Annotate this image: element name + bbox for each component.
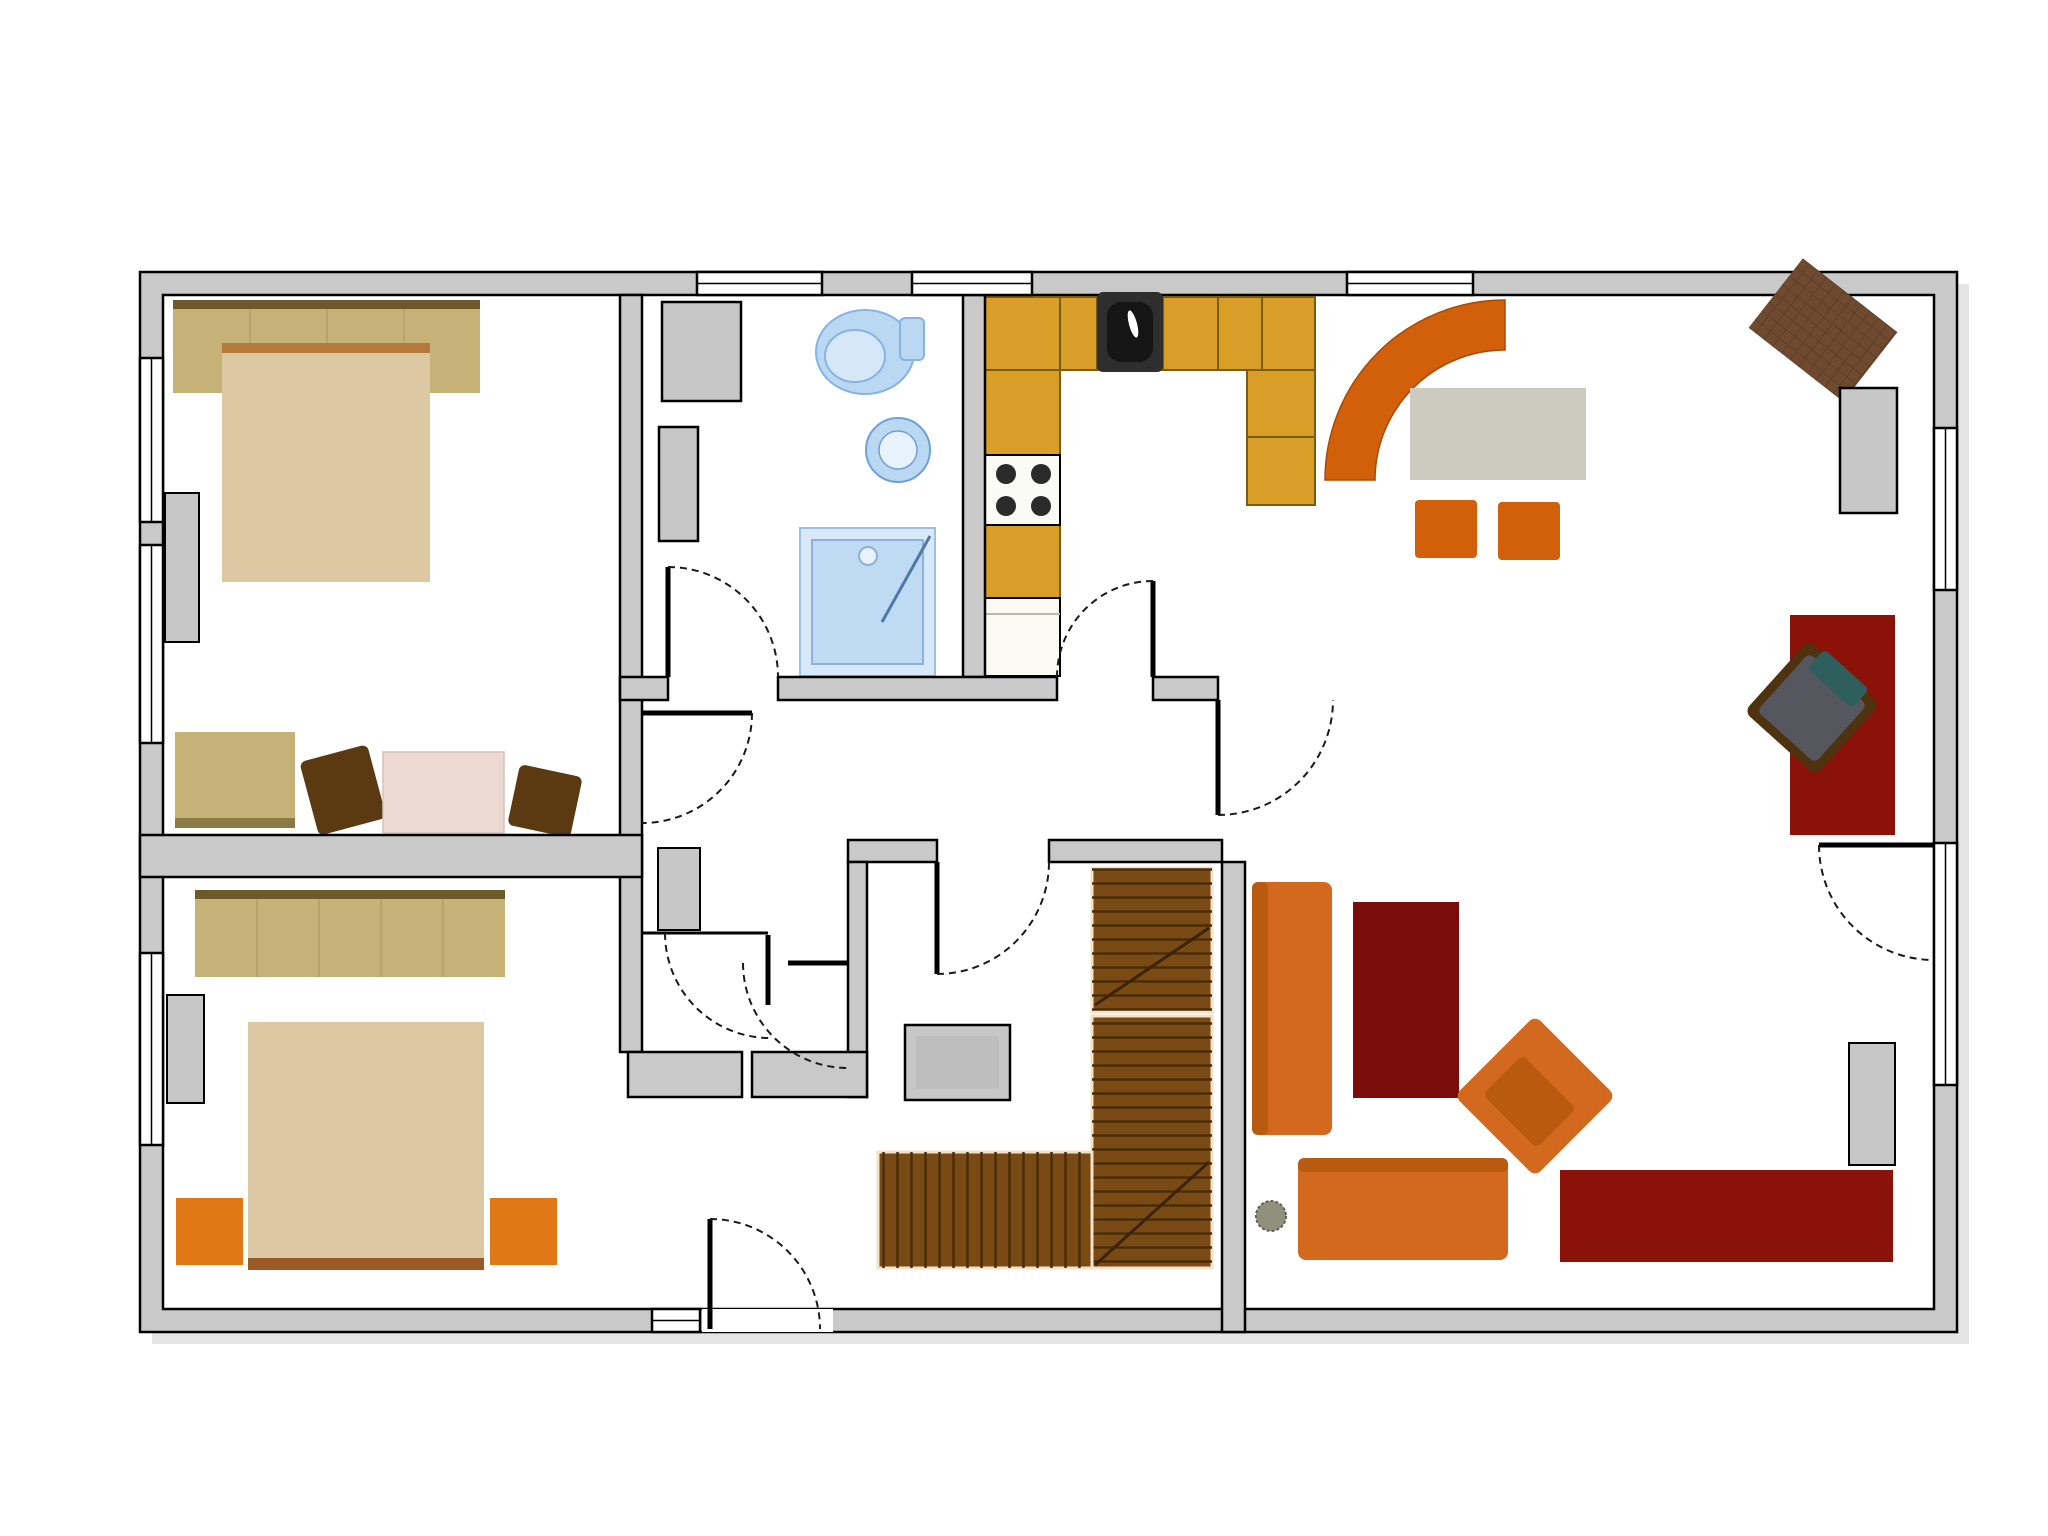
pink-side-table — [383, 752, 504, 833]
wall-stair-top-a — [848, 840, 937, 862]
under-counter-cabinet — [985, 598, 1060, 676]
wall-between-bedrooms — [140, 835, 642, 877]
dresser-edge — [175, 818, 295, 828]
wardrobe-top-edge — [195, 890, 505, 899]
nightstand-right — [490, 1198, 557, 1265]
basin-bowl — [879, 431, 917, 469]
wardrobe-top-edge — [173, 300, 480, 309]
toilet-tank — [900, 318, 924, 360]
red-rug — [1353, 902, 1459, 1098]
stove — [985, 455, 1060, 525]
double-bed — [222, 343, 430, 582]
burner — [1031, 464, 1051, 484]
bed-footboard — [248, 1258, 484, 1270]
sofa-south — [1298, 1158, 1508, 1260]
wall-vestibule-a — [628, 1052, 742, 1097]
radiator — [1849, 1043, 1895, 1165]
wall-vestibule-b — [752, 1052, 867, 1097]
stair-steps-mid — [1092, 1016, 1212, 1268]
toilet-seat — [825, 330, 885, 382]
bed-headboard — [222, 343, 430, 353]
shelf-cabinet — [1840, 388, 1897, 513]
wall-living-west — [1222, 862, 1245, 1332]
wall-corridor-top-b — [778, 677, 1057, 700]
floor-plan — [0, 0, 2048, 1536]
tv-board — [1560, 1170, 1893, 1262]
dresser — [175, 732, 295, 828]
wall-bedrooms-corridor — [620, 295, 642, 1052]
wall-corridor-top-a — [620, 677, 668, 700]
sofa-south-back — [1298, 1158, 1508, 1172]
dining-chair-2 — [1498, 502, 1560, 560]
dining-table — [1410, 388, 1586, 480]
nightstand-left — [176, 1198, 243, 1265]
burner — [996, 464, 1016, 484]
dining-chair-1 — [1415, 500, 1477, 558]
wall-stair-top-b — [1049, 840, 1222, 862]
burner — [996, 496, 1016, 516]
shower-drain — [859, 547, 877, 565]
washing-machine-top — [916, 1036, 999, 1089]
sofa-west-back — [1252, 882, 1268, 1135]
hall-cabinet — [658, 848, 700, 930]
stair-steps-bottom — [878, 1152, 1092, 1268]
burner — [1031, 496, 1051, 516]
wardrobe — [195, 890, 505, 977]
wall-corridor-top-c — [1153, 677, 1218, 700]
stair-steps-upper — [1092, 868, 1212, 1012]
plant — [1256, 1201, 1286, 1231]
wall-shelf — [167, 995, 204, 1103]
counter-left-lower — [985, 525, 1060, 598]
screenshot-canvas — [0, 0, 2048, 1536]
wall-bath-kitchen — [963, 295, 985, 677]
counter-left-run — [985, 370, 1060, 455]
wall-shelf — [165, 493, 199, 642]
double-bed — [248, 1022, 484, 1270]
front-door-opening — [702, 1309, 833, 1332]
radiator — [659, 427, 698, 541]
side-chair-2 — [507, 764, 582, 838]
bathroom-cabinet — [662, 302, 741, 401]
